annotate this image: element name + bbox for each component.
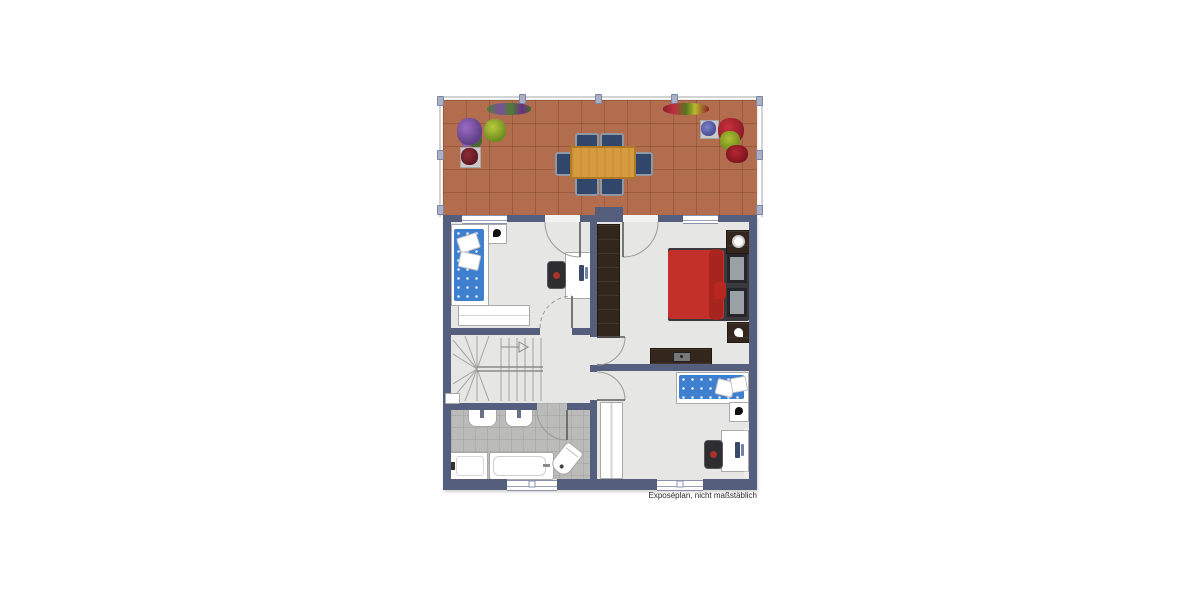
basin-drain <box>517 409 521 418</box>
wardrobe <box>597 224 620 338</box>
pillow-cushion <box>730 291 744 314</box>
bed-pillow <box>730 376 748 394</box>
flower-pot-icon <box>461 148 478 165</box>
flower-box-icon <box>663 103 709 115</box>
wall-box <box>445 393 460 404</box>
laptop-icon <box>585 267 588 279</box>
railing-post <box>595 94 602 104</box>
tub-outline <box>493 456 546 476</box>
faucet-icon <box>451 462 455 470</box>
decor-icon <box>734 328 743 337</box>
toilet-tank-line <box>566 447 578 457</box>
floor-plan-page: Exposéplan, nicht maßstäblich <box>0 0 1200 600</box>
floor-plan <box>443 100 757 490</box>
nightstand <box>488 224 507 244</box>
shower-tray <box>449 452 488 480</box>
window <box>683 215 718 224</box>
wall <box>597 364 749 371</box>
bed-pillow-gray <box>727 288 747 317</box>
single-bed <box>451 224 489 306</box>
nightstand <box>727 322 751 343</box>
toilet-lid-dot <box>559 464 565 470</box>
lamp-icon <box>732 235 745 248</box>
wall <box>590 400 597 479</box>
wall <box>567 403 597 410</box>
wall <box>703 479 757 490</box>
laptop-icon <box>579 265 584 281</box>
pillow-cushion <box>730 257 744 280</box>
dining-table <box>570 146 636 179</box>
wall <box>451 403 537 410</box>
railing-post <box>756 205 763 215</box>
wall <box>580 215 623 222</box>
watermark-strip <box>744 428 748 478</box>
tv-dot <box>680 355 683 358</box>
wardrobe-white <box>600 402 623 479</box>
flower-pot-icon <box>726 145 748 163</box>
bathtub <box>489 452 554 480</box>
bed-pillow-gray <box>727 254 747 283</box>
disclaimer-text: Exposéplan, nicht maßstäblich <box>443 491 757 501</box>
double-bed <box>668 248 749 321</box>
laptop-icon <box>735 442 740 458</box>
dresser <box>458 305 530 326</box>
flower-pot-icon <box>701 121 716 136</box>
flower-pot-icon <box>484 119 506 142</box>
office-chair <box>704 440 723 469</box>
dining-chair <box>633 152 653 176</box>
wall <box>718 215 757 222</box>
tv-icon <box>673 352 691 362</box>
wall <box>507 215 545 222</box>
single-bed <box>676 372 749 404</box>
dining-chair <box>575 176 599 196</box>
railing-post <box>437 150 444 160</box>
wall <box>749 215 757 490</box>
sideboard-tv <box>650 348 712 365</box>
office-chair <box>547 261 566 289</box>
faucet-icon <box>543 464 550 467</box>
wall <box>443 479 507 490</box>
window <box>507 480 557 491</box>
flower-pot-icon <box>457 118 482 145</box>
basin-drain <box>480 409 484 418</box>
dining-chair <box>600 176 624 196</box>
nightstand <box>726 230 751 254</box>
wall <box>590 365 597 372</box>
wall <box>443 215 462 222</box>
wall <box>451 328 540 335</box>
door-opening <box>623 215 658 222</box>
wall <box>590 222 597 337</box>
window <box>657 480 703 491</box>
railing-post <box>756 150 763 160</box>
railing-post <box>519 94 526 104</box>
nightstand <box>729 402 749 422</box>
lamp-icon <box>735 407 743 415</box>
wall <box>443 215 451 490</box>
railing-post <box>756 96 763 106</box>
window <box>462 215 507 224</box>
wall <box>572 328 590 335</box>
door-opening <box>545 215 580 222</box>
terrace <box>443 100 757 215</box>
wall <box>557 479 657 490</box>
railing-post <box>437 96 444 106</box>
wall <box>658 215 683 222</box>
tray-outline <box>456 456 484 476</box>
railing-post <box>437 205 444 215</box>
desk <box>565 252 592 299</box>
lamp-icon <box>493 229 501 237</box>
bed-cushion-red <box>714 282 726 299</box>
flower-box-icon <box>487 103 531 115</box>
